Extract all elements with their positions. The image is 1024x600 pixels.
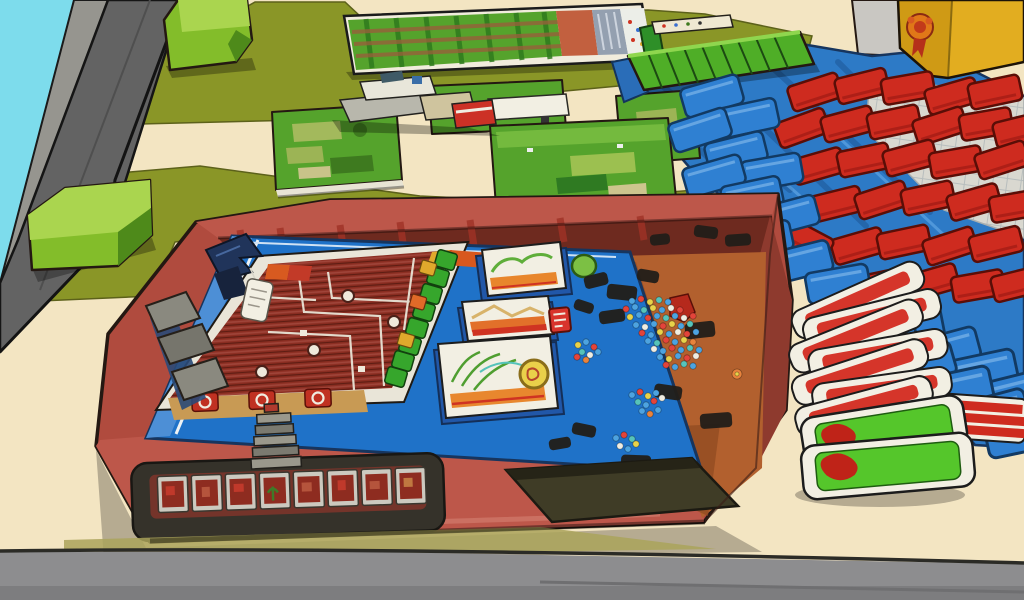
bead <box>663 315 669 321</box>
bead <box>645 315 651 321</box>
bead <box>651 346 657 352</box>
bead <box>665 299 671 305</box>
bead <box>575 342 581 348</box>
bead <box>681 361 687 367</box>
strip-tiles <box>192 389 332 412</box>
bead <box>647 299 653 305</box>
bead <box>690 313 696 319</box>
bead <box>574 354 580 360</box>
bead <box>656 297 662 303</box>
bead <box>639 330 645 336</box>
bead <box>657 329 663 335</box>
game-box <box>96 194 792 542</box>
bead <box>647 411 653 417</box>
bead <box>632 304 638 310</box>
bead <box>684 331 690 337</box>
bead <box>659 395 665 401</box>
bead <box>693 329 699 335</box>
bead <box>643 402 649 408</box>
bead <box>684 355 690 361</box>
bead <box>657 354 663 360</box>
bead <box>669 345 675 351</box>
bead <box>633 322 639 328</box>
bead <box>642 324 648 330</box>
yellow-badge <box>520 360 548 388</box>
bead <box>629 392 635 398</box>
bead <box>617 443 623 449</box>
green-badge <box>572 255 596 277</box>
bead <box>583 357 589 363</box>
bead <box>735 372 739 376</box>
bead <box>639 408 645 414</box>
bead <box>681 337 687 343</box>
bead <box>629 298 635 304</box>
bead <box>635 399 641 405</box>
bead <box>672 339 678 345</box>
bead <box>678 323 684 329</box>
bead <box>675 353 681 359</box>
bead <box>668 305 674 311</box>
bead <box>645 338 651 344</box>
bead <box>655 407 661 413</box>
green-box-top <box>164 0 256 78</box>
bead <box>690 363 696 369</box>
bead <box>579 349 585 355</box>
bead <box>678 347 684 353</box>
bead <box>633 441 639 447</box>
bead <box>663 362 669 368</box>
bead <box>651 321 657 327</box>
scene-canvas <box>0 0 1024 600</box>
bead <box>623 306 629 312</box>
bead <box>690 339 696 345</box>
bead <box>645 393 651 399</box>
bead <box>660 323 666 329</box>
bead <box>638 296 644 302</box>
bead <box>641 307 647 313</box>
bead <box>660 348 666 354</box>
bead <box>681 315 687 321</box>
bead <box>627 314 633 320</box>
bead <box>651 398 657 404</box>
board-game-illustration <box>0 0 1024 600</box>
bead <box>672 313 678 319</box>
bead <box>653 390 659 396</box>
bead <box>648 332 654 338</box>
floor <box>0 550 1024 600</box>
bead <box>693 353 699 359</box>
bead <box>696 347 702 353</box>
bead <box>583 339 589 345</box>
bead <box>666 331 672 337</box>
bead <box>613 435 619 441</box>
red-badge <box>549 307 571 333</box>
bead <box>654 340 660 346</box>
bead <box>677 307 683 313</box>
bead <box>669 321 675 327</box>
bead <box>687 345 693 351</box>
bead <box>625 446 631 452</box>
bead <box>654 313 660 319</box>
bead <box>675 329 681 335</box>
bead <box>636 312 642 318</box>
bead <box>663 337 669 343</box>
bead <box>659 307 665 313</box>
bead <box>672 364 678 370</box>
bead <box>621 432 627 438</box>
bead <box>666 356 672 362</box>
bead <box>687 321 693 327</box>
bead <box>650 305 656 311</box>
bead <box>595 349 601 355</box>
bead <box>637 389 643 395</box>
